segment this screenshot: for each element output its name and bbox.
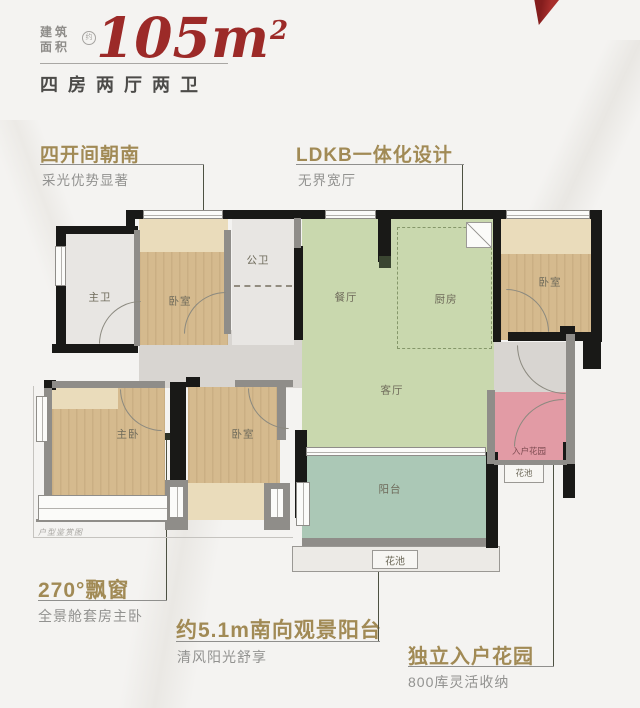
wall — [170, 382, 186, 488]
callout-ldkb-subtitle: 无界宽厅 — [298, 169, 356, 189]
callout-south-facing-subtitle: 采光优势显著 — [42, 169, 129, 189]
window — [55, 246, 66, 286]
callout-south-facing-title: 四开间朝南 — [40, 140, 140, 167]
floorplan-poster: 建筑 面积 约 105m2 四房两厅两卫 四开间朝南 采光优势显著 LDKB一体… — [0, 0, 640, 708]
room-public-bath — [232, 218, 294, 345]
wall — [302, 538, 486, 546]
bay-window-sill — [38, 495, 168, 521]
label-entry-garden: 入户花园 — [512, 445, 546, 457]
area-label: 建筑 面积 — [40, 25, 70, 55]
sliding-door-track — [306, 447, 486, 456]
wall — [486, 452, 498, 548]
area-number: 105 — [96, 5, 211, 70]
red-corner-ribbon — [531, 0, 559, 25]
bed-strip — [500, 218, 592, 254]
wall — [52, 381, 165, 388]
window — [270, 488, 284, 518]
callout-underline — [408, 666, 554, 667]
area-label-line2: 面积 — [40, 40, 70, 55]
label-master-bedroom: 主卧 — [117, 427, 140, 442]
bed-strip — [139, 218, 228, 252]
wall — [487, 390, 495, 464]
label-master-bath: 主卫 — [89, 290, 112, 305]
callout-baywindow-subtitle: 全景舱套房主卧 — [38, 606, 143, 626]
callout-balcony-subtitle: 清风阳光舒享 — [177, 647, 267, 667]
label-flower-bed-bottom: 花池 — [385, 553, 405, 568]
area-label-line1: 建筑 — [40, 25, 70, 40]
bed-strip — [52, 387, 118, 409]
callout-ldkb-title: LDKB一体化设计 — [296, 140, 453, 167]
label-dining: 餐厅 — [335, 290, 358, 305]
wall — [560, 326, 575, 334]
wall — [378, 212, 391, 262]
wall — [566, 392, 575, 464]
wall — [52, 344, 138, 353]
window — [325, 210, 376, 219]
wall — [56, 226, 66, 352]
wall — [294, 246, 303, 340]
callout-balcony-title: 约5.1m南向观景阳台 — [176, 614, 382, 644]
bay-window — [36, 396, 48, 442]
wall — [494, 460, 567, 465]
window — [143, 210, 223, 219]
area-unit: m — [211, 5, 269, 70]
fridge-symbol — [466, 222, 492, 248]
label-bedroom-tl: 卧室 — [169, 294, 192, 309]
callout-underline — [176, 641, 380, 642]
label-living: 客厅 — [381, 383, 404, 398]
balcony-window — [296, 482, 310, 526]
label-balcony: 阳台 — [379, 482, 402, 497]
wall — [379, 256, 391, 268]
shower-partition — [234, 285, 292, 287]
label-flower-bed-right: 花池 — [515, 467, 532, 479]
callout-garden-subtitle: 800库灵活收纳 — [408, 672, 509, 692]
window — [506, 210, 590, 219]
area-value: 105m2 — [96, 0, 288, 69]
wall — [294, 218, 301, 248]
area-approx-badge: 约 — [82, 31, 96, 45]
area-sup: 2 — [270, 16, 288, 46]
wall — [508, 332, 592, 341]
callout-garden-title: 独立入户花园 — [408, 640, 534, 669]
wall — [591, 218, 602, 342]
wall — [56, 226, 138, 234]
window — [169, 486, 184, 518]
wall — [566, 334, 575, 392]
bay-seat-strip — [188, 483, 264, 520]
label-bedroom-bottom: 卧室 — [232, 427, 255, 442]
wall — [583, 341, 601, 369]
wall — [493, 218, 501, 342]
label-kitchen: 厨房 — [435, 292, 458, 307]
layout-subtitle: 四房两厅两卫 — [40, 71, 208, 97]
room-balcony — [302, 454, 486, 544]
wall — [186, 377, 200, 387]
header-divider — [40, 63, 228, 64]
callout-underline — [296, 164, 464, 165]
plan-caption: 户型鉴赏图 — [38, 527, 83, 538]
callout-underline — [38, 600, 167, 601]
label-bedroom-tr: 卧室 — [539, 275, 562, 290]
lot-line — [33, 386, 34, 538]
label-public-bath: 公卫 — [247, 253, 270, 268]
callout-underline — [40, 164, 204, 165]
